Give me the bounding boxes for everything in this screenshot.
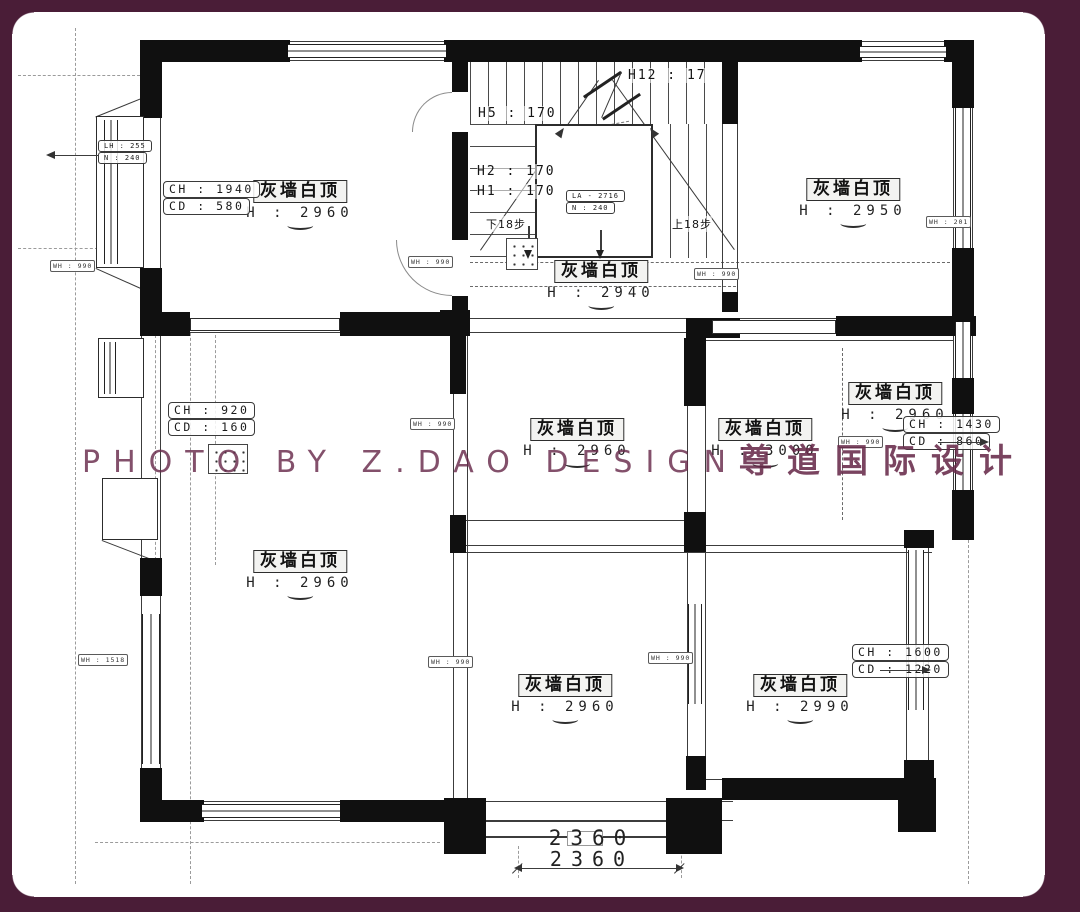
wall-line <box>706 340 954 341</box>
window <box>142 614 160 764</box>
threshold-line <box>486 820 666 822</box>
wall-tag: WH : 201 <box>926 216 971 228</box>
bay-window <box>102 478 158 540</box>
window <box>955 322 971 378</box>
wall-tag: WH : 990 <box>50 260 95 272</box>
sill-tag-top-left: CH : 1940 CD : 580 <box>163 181 260 215</box>
door-swing-arc <box>396 240 452 296</box>
stair-mid-tag-line2: N : 240 <box>566 202 615 214</box>
door-panel <box>712 320 836 334</box>
door-panel <box>190 318 340 331</box>
dimension-extension <box>518 846 519 878</box>
wall-segment <box>898 778 936 832</box>
stair-label-up-steps: 上18步 <box>672 216 712 232</box>
wall-tag: WH : 990 <box>428 656 473 668</box>
corner-tag-arrowhead <box>46 151 55 159</box>
ceiling-wave-icon <box>840 219 866 228</box>
room-label-mid-right-a: 灰墙白顶 H : 3000 <box>711 418 818 468</box>
wall-segment <box>952 248 974 322</box>
room-label-mid-left: 灰墙白顶 H : 2960 <box>246 550 353 600</box>
frame-corner <box>12 12 34 34</box>
stair-label-h1: H1 : 170 <box>477 184 556 199</box>
stair-label-down-steps: 下18步 <box>486 216 526 232</box>
room-name: 灰墙白顶 <box>253 180 347 203</box>
bay-chamfer <box>95 268 143 290</box>
stair-direction-line <box>600 230 602 252</box>
sill-tag-bottom-right: CH : 1600 CD : 1220 <box>852 644 949 678</box>
room-label-stair-hall: 灰墙白顶 H : 2940 <box>547 260 654 310</box>
sill-tag-line1: CH : 920 <box>168 402 255 419</box>
room-name: 灰墙白顶 <box>718 418 812 441</box>
door-swing-arc <box>412 92 452 132</box>
stair-up-arrowhead <box>596 250 604 259</box>
room-height: H : 2950 <box>799 203 906 219</box>
corner-tag-arrow-line <box>54 155 98 156</box>
room-height: H : 3000 <box>711 443 818 459</box>
stair-mid-tag-line1: LA - 2716 <box>566 190 625 202</box>
ceiling-wave-icon <box>787 715 813 724</box>
grid-line <box>18 248 98 249</box>
wall-segment <box>140 62 162 118</box>
wall-tag: WH : 990 <box>648 652 693 664</box>
wall-segment <box>722 292 738 312</box>
dimension-arrowhead <box>514 864 522 872</box>
room-name: 灰墙白顶 <box>554 260 648 283</box>
dimension-line <box>518 868 682 869</box>
wall-segment <box>684 338 706 406</box>
wall-segment <box>140 312 190 336</box>
frame-corner <box>1023 875 1045 897</box>
room-height: H : 2940 <box>547 285 654 301</box>
wall-segment <box>140 768 162 802</box>
hall-boundary-dashed <box>470 262 950 263</box>
grid-line <box>18 75 140 76</box>
wall-line <box>455 520 706 521</box>
wall-segment <box>952 62 974 108</box>
wall-segment <box>452 296 468 314</box>
room-name: 灰墙白顶 <box>530 418 624 441</box>
room-name: 灰墙白顶 <box>518 674 612 697</box>
room-name: 灰墙白顶 <box>848 382 942 405</box>
sill-tag-line2: CD : 160 <box>168 419 255 436</box>
window <box>908 550 924 710</box>
room-height: H : 2990 <box>746 699 853 715</box>
wall-segment <box>740 40 862 62</box>
window <box>104 342 116 394</box>
corner-tag: LH : 255 N : 240 <box>98 140 152 164</box>
wall-tag: WH : 990 <box>408 256 453 268</box>
grid-line <box>95 842 440 843</box>
sill-tag-line1: CH : 1430 <box>903 416 1000 433</box>
stair-label-h12: H12 : 17 <box>628 68 707 83</box>
room-height: H : 2960 <box>246 575 353 591</box>
wall-segment <box>140 40 290 62</box>
wall-segment <box>666 798 722 854</box>
sill-tag-line1: CH : 1940 <box>163 181 260 198</box>
frame-corner <box>1023 12 1045 34</box>
wall-tag: WH : 990 <box>694 268 739 280</box>
dimension-arrowhead <box>676 864 684 872</box>
room-height: H : 2960 <box>246 205 353 221</box>
bay-chamfer <box>95 97 144 118</box>
ceiling-wave-icon <box>564 459 590 468</box>
wall-segment <box>684 512 706 552</box>
ceiling-wave-icon <box>287 591 313 600</box>
grid-line <box>75 28 76 884</box>
switch-tag <box>208 444 248 474</box>
window <box>288 44 446 58</box>
room-height: H : 2960 <box>511 699 618 715</box>
room-label-bottom-right: 灰墙白顶 H : 2990 <box>746 674 853 724</box>
room-height: H : 2960 <box>523 443 630 459</box>
grid-line <box>968 530 969 884</box>
corner-tag-line1: LH : 255 <box>98 140 152 152</box>
floor-plan-photo: { "watermark": { "text_latin": "PHOTO BY… <box>0 0 1080 912</box>
watermark-latin-text: PHOTO BY Z.DAO DESIGN <box>82 445 739 480</box>
wall-segment <box>944 40 974 62</box>
room-name: 灰墙白顶 <box>806 178 900 201</box>
sill-tag-line2: CD : 580 <box>163 198 250 215</box>
wall-line <box>160 62 161 800</box>
stair-label-h2: H2 : 170 <box>477 164 556 179</box>
switch-tag <box>506 238 538 270</box>
ceiling-wave-icon <box>287 221 313 230</box>
frame-corner <box>12 875 34 897</box>
wall-segment <box>952 378 974 414</box>
room-label-top-right: 灰墙白顶 H : 2950 <box>799 178 906 228</box>
room-label-bottom-center: 灰墙白顶 H : 2960 <box>511 674 618 724</box>
sill-tag-mid-left: CH : 920 CD : 160 <box>168 402 255 436</box>
sill-tag-arrow-line <box>880 670 926 671</box>
stair-treads <box>652 124 722 258</box>
wall-segment <box>450 336 466 394</box>
wall-tag: WH : 990 <box>838 436 883 448</box>
wall-tag: WH : 990 <box>410 418 455 430</box>
wall-segment <box>722 778 908 800</box>
wall-segment <box>140 800 204 822</box>
room-name: 灰墙白顶 <box>753 674 847 697</box>
room-label-top-left: 灰墙白顶 H : 2960 <box>246 180 353 230</box>
room-label-mid-center: 灰墙白顶 H : 2960 <box>523 418 630 468</box>
ceiling-wave-icon <box>552 715 578 724</box>
wall-segment <box>904 530 934 548</box>
wall-segment <box>444 40 740 62</box>
stair-label-h5: H5 : 170 <box>478 106 557 121</box>
wall-segment <box>686 756 706 790</box>
wall-segment <box>952 490 974 540</box>
wall-segment <box>450 515 466 553</box>
sill-tag-arrowhead <box>922 666 931 674</box>
wall-line <box>455 552 932 553</box>
wall-tag: WH : 1518 <box>78 654 128 666</box>
wall-segment <box>340 312 446 336</box>
door-opening <box>452 92 468 132</box>
wall-segment <box>722 62 738 124</box>
sill-tag-line1: CH : 1600 <box>852 644 949 661</box>
wall-segment <box>444 798 486 854</box>
sill-tag-arrowhead <box>980 438 989 446</box>
room-divider-dashed <box>842 348 843 520</box>
wall-segment <box>140 558 162 596</box>
ceiling-wave-icon <box>752 459 778 468</box>
door-opening <box>452 240 468 296</box>
corner-tag-line2: N : 240 <box>98 152 147 164</box>
wall-segment <box>452 62 468 240</box>
window <box>860 46 946 58</box>
room-name: 灰墙白顶 <box>253 550 347 573</box>
ceiling-wave-icon <box>588 301 614 310</box>
stair-mid-tag: LA - 2716 N : 240 <box>566 190 625 214</box>
sill-tag-arrow-line <box>938 442 984 443</box>
stair-down-arrowhead <box>524 250 532 259</box>
window <box>202 804 340 818</box>
